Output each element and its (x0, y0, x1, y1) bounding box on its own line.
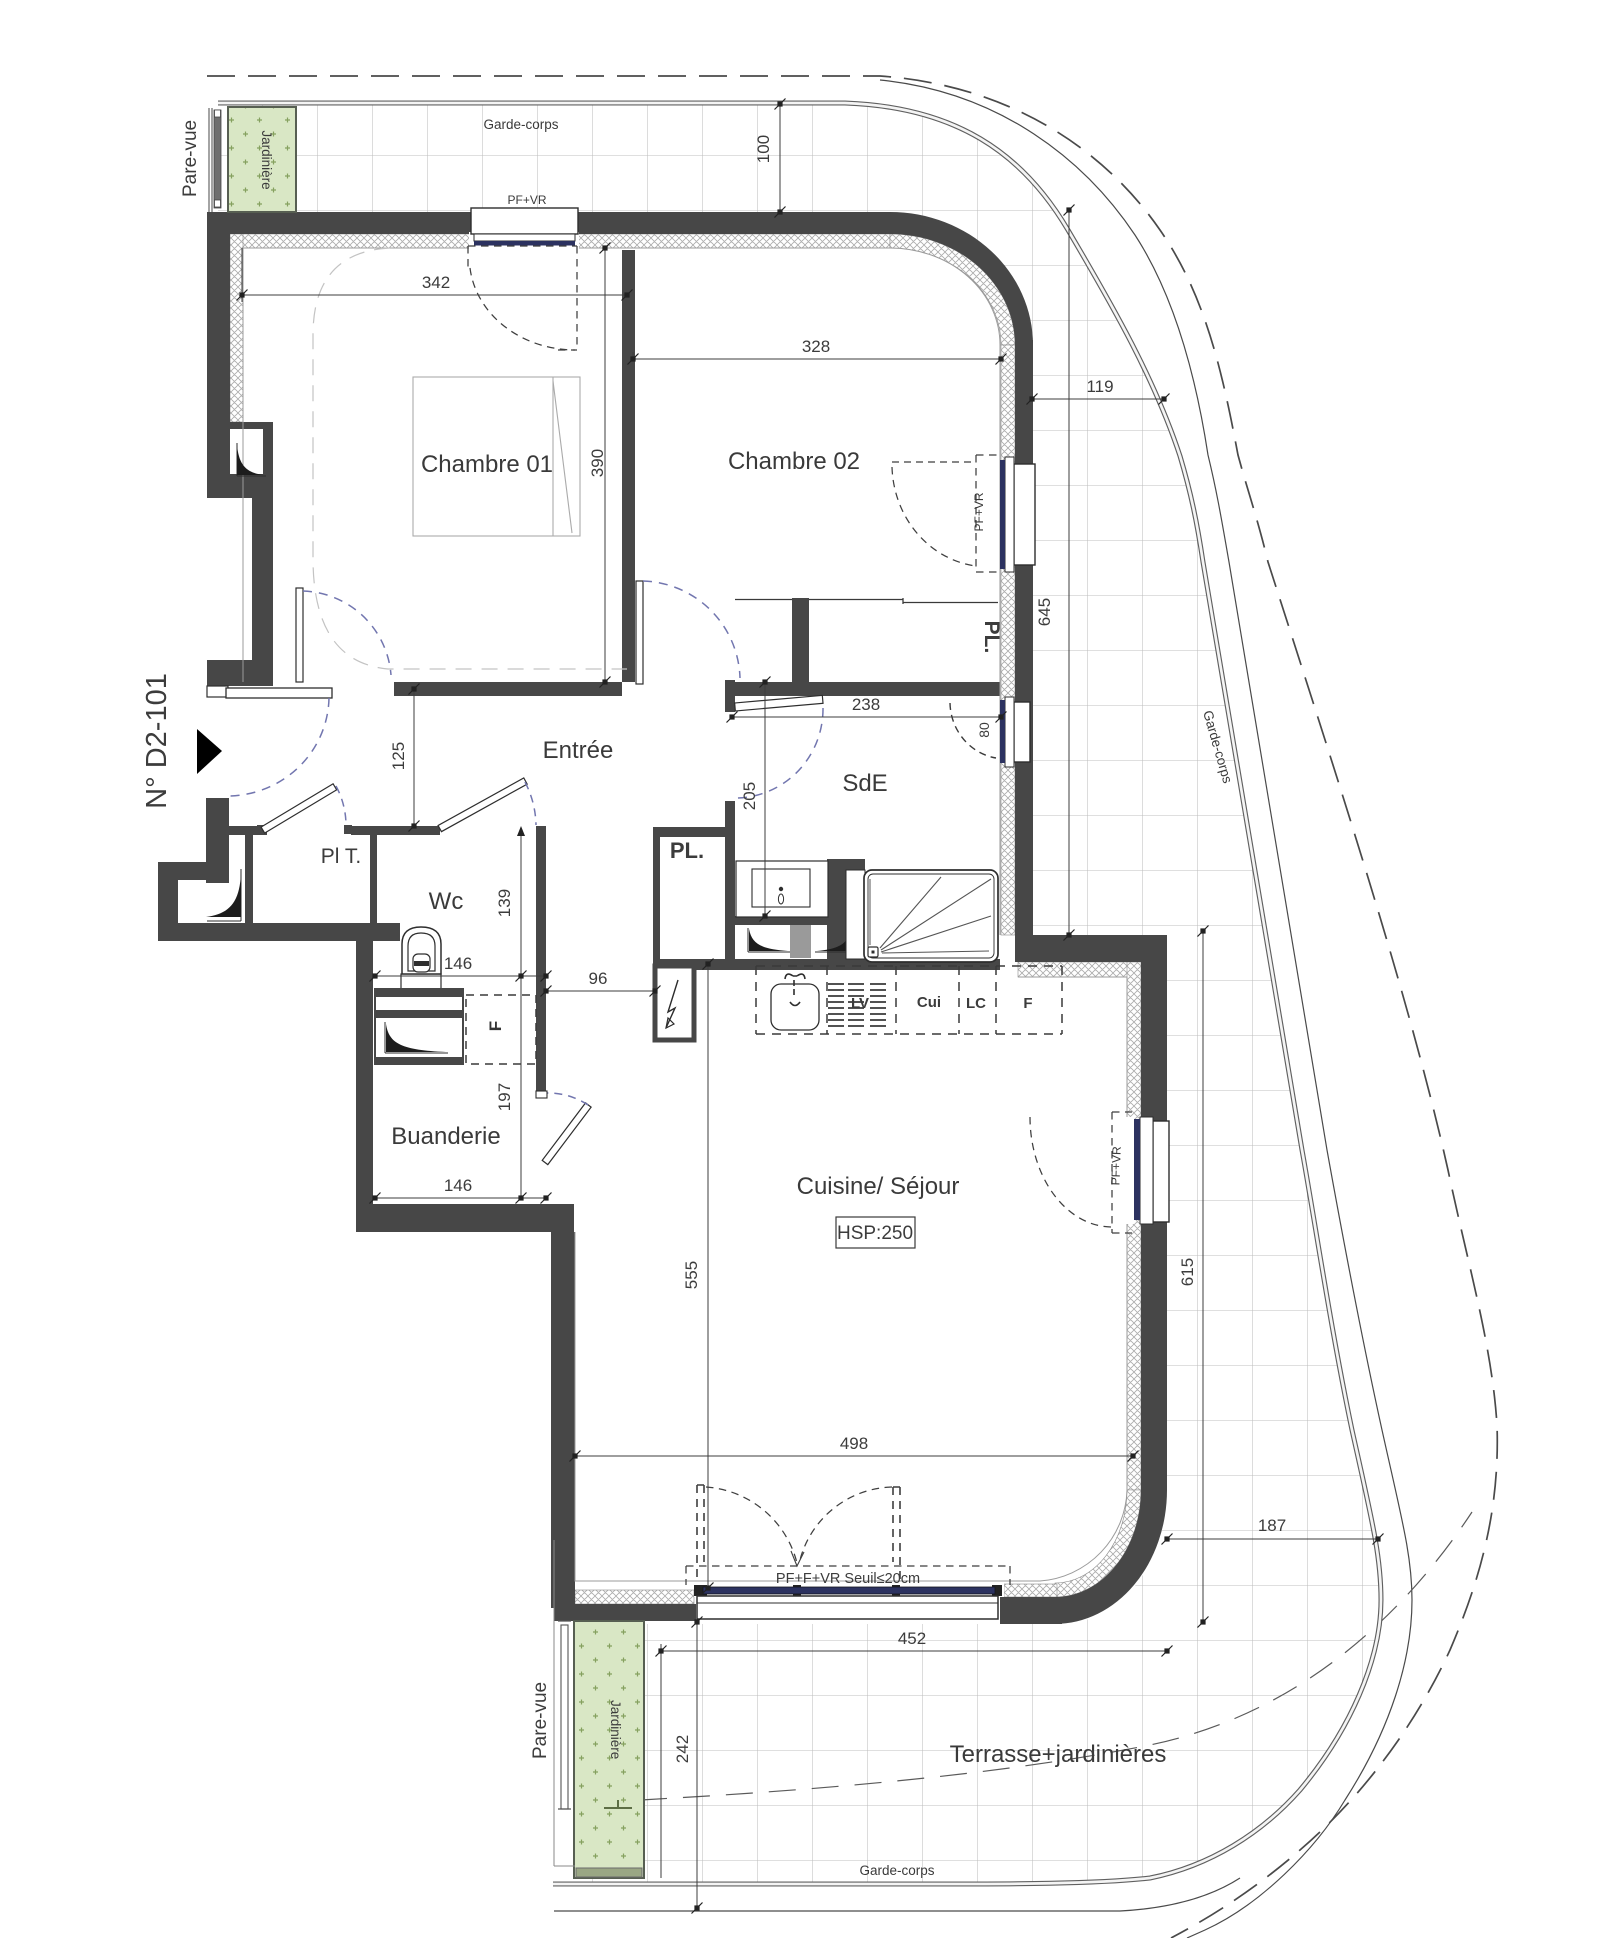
svg-text:119: 119 (1086, 377, 1113, 396)
svg-text:96: 96 (589, 969, 608, 988)
svg-text:205: 205 (740, 782, 759, 810)
svg-text:Pare-vue: Pare-vue (530, 1682, 551, 1759)
svg-text:PF+VR: PF+VR (1108, 1146, 1123, 1186)
svg-text:645: 645 (1035, 598, 1054, 626)
svg-text:Cui: Cui (917, 994, 941, 1011)
svg-text:Terrasse+jardinières: Terrasse+jardinières (950, 1741, 1167, 1768)
svg-text:HSP:250: HSP:250 (837, 1223, 913, 1244)
svg-text:342: 342 (422, 273, 450, 292)
svg-text:Jardinière: Jardinière (608, 1700, 623, 1759)
svg-text:242: 242 (673, 1735, 692, 1763)
svg-text:F: F (486, 1021, 505, 1031)
svg-text:LC: LC (966, 995, 986, 1012)
svg-text:LV: LV (851, 995, 869, 1012)
svg-text:Pl T.: Pl T. (321, 845, 361, 868)
svg-text:Chambre 01: Chambre 01 (421, 451, 553, 478)
svg-text:Garde-corps: Garde-corps (483, 117, 558, 132)
svg-text:187: 187 (1258, 1516, 1286, 1535)
svg-text:F: F (1023, 995, 1032, 1012)
svg-text:PF+VR: PF+VR (507, 193, 546, 207)
svg-text:146: 146 (444, 954, 472, 973)
svg-text:100: 100 (754, 135, 773, 163)
svg-text:146: 146 (444, 1176, 472, 1195)
svg-text:390: 390 (588, 449, 607, 477)
svg-text:Chambre 02: Chambre 02 (728, 448, 860, 475)
svg-text:PF+VR: PF+VR (972, 492, 986, 531)
svg-text:Entrée: Entrée (543, 737, 614, 764)
svg-text:197: 197 (495, 1083, 514, 1111)
svg-text:80: 80 (976, 722, 992, 738)
svg-text:PL.: PL. (980, 621, 1003, 654)
svg-text:Wc: Wc (429, 888, 464, 915)
svg-text:Pare-vue: Pare-vue (180, 120, 201, 197)
svg-text:Jardinière: Jardinière (259, 130, 274, 189)
svg-text:Buanderie: Buanderie (391, 1123, 500, 1150)
svg-text:139: 139 (495, 889, 514, 917)
svg-text:125: 125 (389, 742, 408, 770)
svg-text:Garde-corps: Garde-corps (859, 1863, 934, 1878)
svg-text:498: 498 (840, 1434, 868, 1453)
svg-text:PF+F+VR Seuil≤20cm: PF+F+VR Seuil≤20cm (776, 1571, 920, 1587)
svg-text:615: 615 (1178, 1258, 1197, 1286)
svg-text:238: 238 (852, 695, 880, 714)
svg-text:SdE: SdE (842, 770, 887, 797)
svg-text:N° D2-101: N° D2-101 (141, 673, 173, 809)
svg-text:555: 555 (682, 1261, 701, 1289)
svg-text:452: 452 (898, 1629, 926, 1648)
svg-text:Cuisine/ Séjour: Cuisine/ Séjour (797, 1173, 960, 1200)
svg-text:328: 328 (802, 337, 830, 356)
svg-text:PL.: PL. (670, 838, 704, 863)
